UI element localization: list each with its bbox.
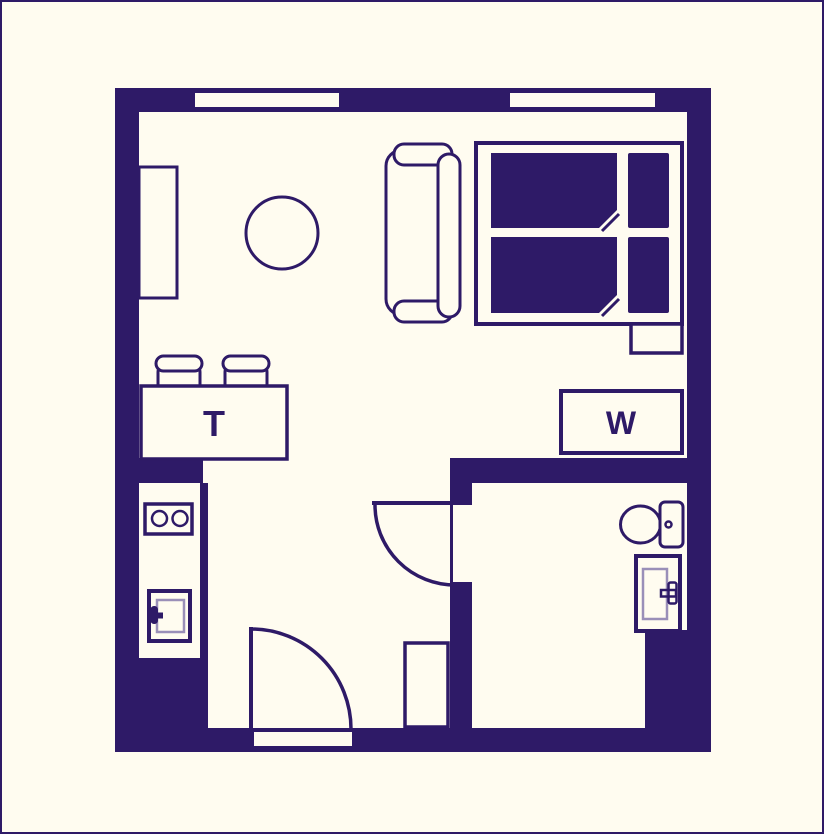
floor-plan-page: W T: [0, 0, 824, 834]
stool-1: [156, 356, 202, 388]
bathroom-door-sill: [453, 582, 472, 585]
window-left: [194, 92, 340, 108]
kitchen-appliance: [149, 591, 190, 641]
round-table: [246, 197, 318, 269]
appliance-handle-stub: [155, 613, 163, 619]
entry-door-leaf: [249, 627, 253, 730]
stool-backrest: [156, 356, 202, 371]
toilet: [621, 502, 684, 547]
kitchen-wall-stub: [139, 458, 203, 483]
sofa-backrest: [438, 154, 460, 317]
stove: [145, 504, 192, 534]
bathroom-door-opening: [453, 505, 472, 585]
bed-pillow-bottom: [628, 237, 669, 313]
kitchen-under-counter-block: [139, 658, 208, 728]
floor-plan: W T: [0, 0, 824, 834]
entry-door-threshold: [253, 731, 353, 747]
bathroom-shaft: [645, 630, 711, 728]
dining-table-label: T: [203, 403, 225, 444]
wall-bottom: [115, 728, 711, 752]
bathroom-wall-vertical: [450, 458, 472, 728]
toilet-bowl: [621, 506, 661, 543]
bed-duvet-top: [491, 153, 617, 228]
bathroom-sink: [636, 556, 680, 631]
bathroom-wall-horizontal: [450, 458, 711, 483]
wardrobe: [139, 167, 177, 298]
nightstand: [631, 324, 682, 353]
hall-cabinet: [405, 643, 448, 727]
window-right: [509, 92, 656, 108]
stool-2: [223, 356, 269, 388]
wall-left: [115, 88, 139, 752]
sofa-seat: [386, 150, 442, 315]
washing-machine: W: [561, 391, 682, 453]
hallway: [405, 643, 448, 727]
bed-duvet-bottom: [491, 237, 617, 313]
bed-pillow-top: [628, 153, 669, 228]
bathroom-door-leaf: [372, 501, 456, 505]
stool-backrest: [223, 356, 269, 371]
double-bed: [476, 143, 682, 353]
sofa: [386, 144, 460, 322]
washing-machine-label: W: [606, 405, 637, 441]
